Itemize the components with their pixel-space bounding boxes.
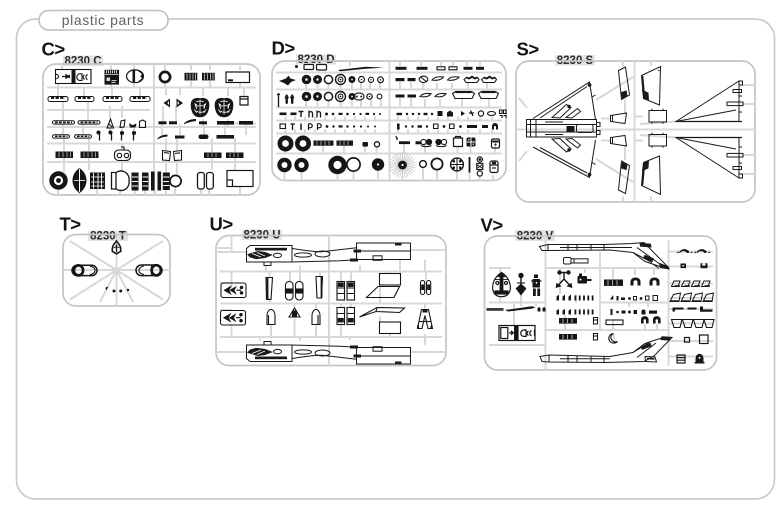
svg-text:8230 T: 8230 T [90, 231, 126, 243]
svg-text:8230 D: 8230 D [297, 54, 334, 66]
svg-text:C>: C> [42, 39, 66, 60]
svg-text:V>: V> [481, 215, 504, 236]
svg-text:S>: S> [517, 39, 540, 60]
svg-text:T>: T> [60, 214, 82, 235]
svg-text:8230 C: 8230 C [64, 56, 101, 68]
svg-text:U>: U> [210, 214, 234, 235]
svg-text:D>: D> [272, 38, 296, 59]
svg-text:plastic parts: plastic parts [62, 12, 145, 28]
